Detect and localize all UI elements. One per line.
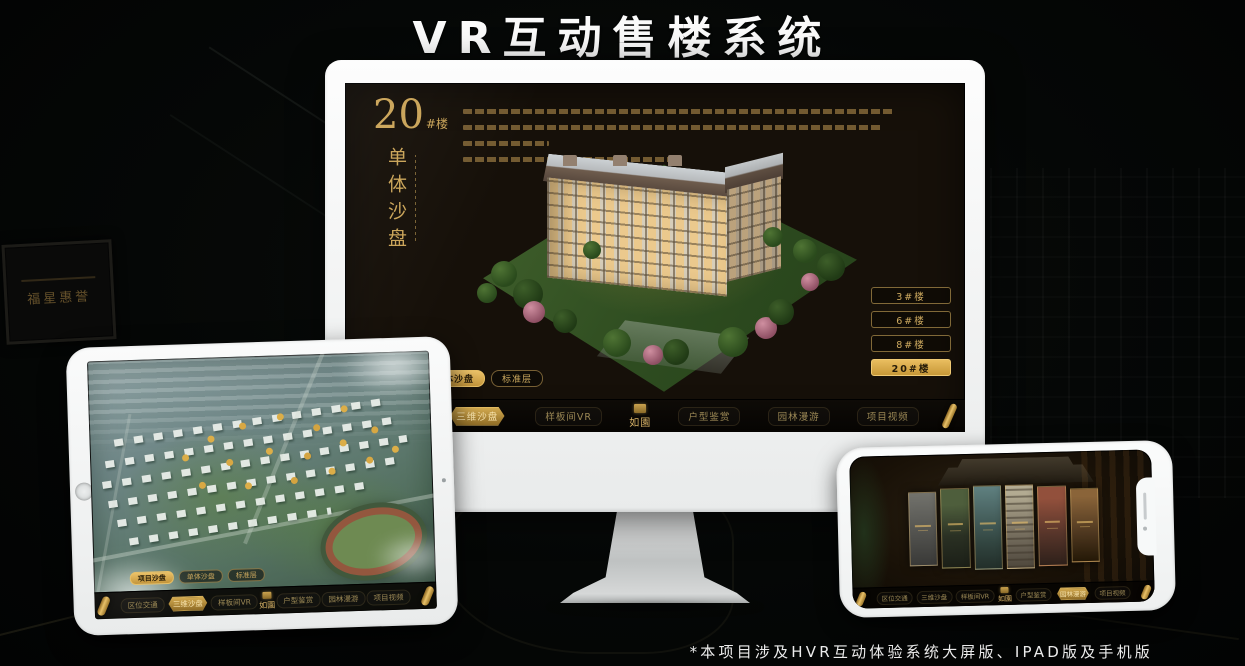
nav-item-garden-tour[interactable]: 园林漫游 — [768, 407, 830, 426]
tree — [553, 309, 577, 333]
nav-item-floorplans[interactable]: 户型鉴赏 — [678, 407, 740, 426]
tablet-device: 项目沙盘 单体沙盘 标准层 区位交通 三维沙盘 样板间VR 如園 户型鉴赏 园林… — [66, 336, 459, 636]
monitor-stand-shadow — [545, 601, 765, 613]
panorama-gallery — [908, 479, 1100, 576]
plaque-subtitle-line — [21, 276, 96, 282]
unit-suffix: #楼 — [426, 117, 448, 131]
tab-standard-floor[interactable]: 标准层 — [228, 568, 265, 582]
nav-item-location[interactable]: 区位交通 — [120, 597, 164, 613]
tree — [663, 339, 689, 365]
tab-label: 单体沙盘 — [187, 571, 215, 582]
nav-item-project-video[interactable]: 项目视频 — [1094, 585, 1130, 599]
nav-label: 项目视频 — [867, 409, 909, 423]
nav-label: 户型鉴赏 — [283, 594, 313, 606]
nav-label: 样板间VR — [961, 590, 990, 601]
nav-label: 样板间VR — [218, 596, 251, 608]
flowering-tree — [643, 345, 663, 365]
building-selector: 3#楼 6#楼 8#楼 20#楼 — [871, 287, 951, 376]
tablet-screen: 项目沙盘 单体沙盘 标准层 区位交通 三维沙盘 样板间VR 如園 户型鉴赏 园林… — [87, 351, 437, 620]
nav-label: 园林漫游 — [328, 593, 358, 605]
nav-item-showroom-vr[interactable]: 样板间VR — [211, 594, 258, 610]
footnote: *本项目涉及HVR互动体验系统大屏版、IPAD版及手机版 — [690, 641, 1153, 662]
tree — [718, 327, 748, 357]
nav-item-showroom-vr[interactable]: 样板间VR — [956, 589, 995, 603]
paragraph-line — [463, 125, 882, 130]
building-3d-render[interactable] — [463, 133, 865, 397]
roof-dormer — [563, 155, 577, 166]
nav-item-project-video[interactable]: 项目视频 — [857, 407, 919, 426]
background-award-plaque: 福星惠誉 — [1, 239, 116, 345]
nav-item-project-video[interactable]: 项目视频 — [366, 589, 410, 605]
logo-text: 如園 — [998, 593, 1012, 603]
nav-label: 园林漫游 — [778, 409, 820, 423]
promo-canvas: 福星惠誉 VR互动售楼系统 20#楼 单体沙盘 — [0, 0, 1245, 666]
building-button-label: 6#楼 — [896, 313, 926, 327]
building-button-label: 20#楼 — [892, 361, 931, 375]
page-title: VR互动售楼系统 — [0, 2, 1245, 66]
roof-dormer — [668, 155, 682, 166]
phone-notch — [1136, 477, 1157, 555]
nav-item-3d-sandbox[interactable]: 三维沙盘 — [446, 407, 508, 426]
tablet-sandbox-tabs: 项目沙盘 单体沙盘 标准层 — [130, 568, 265, 585]
flowering-tree — [801, 273, 819, 291]
tree — [763, 227, 783, 247]
seal-icon — [1001, 586, 1009, 592]
flowering-tree — [523, 301, 545, 323]
building-button-6[interactable]: 6#楼 — [871, 311, 951, 328]
nav-item-garden-tour[interactable]: 园林漫游 — [1055, 586, 1091, 600]
unit-divider — [415, 155, 416, 241]
nav-label: 三维沙盘 — [456, 409, 498, 423]
tree — [583, 241, 601, 259]
tab-label: 项目沙盘 — [138, 573, 166, 584]
nav-label: 区位交通 — [882, 592, 908, 603]
gallery-panel-interior[interactable] — [1070, 488, 1100, 563]
tree — [603, 329, 631, 357]
nav-label: 项目视频 — [1099, 587, 1125, 598]
phone-screen: 区位交通 三维沙盘 样板间VR 如園 户型鉴赏 园林漫游 项目视频 — [849, 449, 1155, 608]
building-button-8[interactable]: 8#楼 — [871, 335, 951, 352]
unit-title-vertical: 单体沙盘 — [383, 147, 410, 255]
building-button-label: 3#楼 — [896, 289, 926, 303]
nav-label: 园林漫游 — [1060, 588, 1086, 599]
nav-label: 三维沙盘 — [173, 597, 203, 609]
unit-number: 20 — [373, 92, 424, 138]
paragraph-line — [463, 109, 895, 114]
nav-item-3d-sandbox[interactable]: 三维沙盘 — [916, 590, 952, 604]
tab-standard-floor[interactable]: 标准层 — [491, 370, 543, 387]
ruyuan-logo: 如園 — [629, 404, 651, 429]
scroll-icon[interactable] — [941, 403, 958, 430]
tablet-camera-dot — [442, 478, 446, 482]
logo-text: 如園 — [259, 599, 275, 610]
building-button-20[interactable]: 20#楼 — [871, 359, 951, 376]
tree — [817, 253, 845, 281]
speaker-slot — [1143, 493, 1147, 520]
nav-item-floorplans[interactable]: 户型鉴赏 — [276, 592, 320, 608]
building-button-label: 8#楼 — [896, 337, 926, 351]
scroll-icon[interactable] — [420, 585, 435, 607]
nav-item-location[interactable]: 区位交通 — [876, 591, 912, 605]
tree — [768, 299, 794, 325]
ruyuan-logo: 如園 — [259, 591, 276, 610]
ruyuan-logo: 如園 — [998, 586, 1012, 603]
plaque-text: 福星惠誉 — [27, 285, 92, 307]
nav-label: 户型鉴赏 — [1020, 589, 1046, 600]
gallery-panel-aerial[interactable] — [973, 485, 1003, 570]
unit-heading: 20#楼 — [373, 95, 448, 135]
tab-project-sandbox[interactable]: 项目沙盘 — [130, 571, 174, 585]
gallery-panel-autumn[interactable] — [1037, 486, 1067, 567]
seal-icon — [634, 404, 646, 413]
gallery-panel-building[interactable] — [1005, 484, 1035, 569]
nav-label: 项目视频 — [373, 591, 403, 603]
nav-item-floorplans[interactable]: 户型鉴赏 — [1015, 587, 1051, 601]
tab-label: 标准层 — [502, 372, 532, 385]
tree — [491, 261, 517, 287]
tab-label: 标准层 — [236, 570, 257, 581]
nav-label: 三维沙盘 — [921, 591, 947, 602]
front-camera-dot — [1143, 527, 1147, 531]
seal-icon — [262, 591, 271, 598]
building-button-3[interactable]: 3#楼 — [871, 287, 951, 304]
logo-text: 如園 — [629, 414, 651, 429]
building-front-facade — [547, 178, 727, 297]
tree — [477, 283, 497, 303]
gallery-panel-garden[interactable] — [940, 488, 970, 569]
nav-item-garden-tour[interactable]: 园林漫游 — [321, 590, 365, 606]
phone-device: 区位交通 三维沙盘 样板间VR 如園 户型鉴赏 园林漫游 项目视频 — [836, 440, 1176, 618]
nav-item-showroom-vr[interactable]: 样板间VR — [535, 407, 602, 426]
nav-label: 户型鉴赏 — [688, 409, 730, 423]
scroll-icon[interactable] — [96, 595, 111, 617]
scroll-icon[interactable] — [1140, 584, 1152, 601]
nav-item-3d-sandbox[interactable]: 三维沙盘 — [166, 595, 210, 611]
gallery-panel-courtyard[interactable] — [908, 492, 938, 567]
roof-dormer — [613, 155, 627, 166]
nav-label: 区位交通 — [128, 599, 158, 611]
scroll-icon[interactable] — [855, 591, 867, 608]
tree — [793, 239, 817, 263]
nav-label: 样板间VR — [545, 409, 592, 423]
tab-single-sandbox[interactable]: 单体沙盘 — [179, 569, 223, 583]
